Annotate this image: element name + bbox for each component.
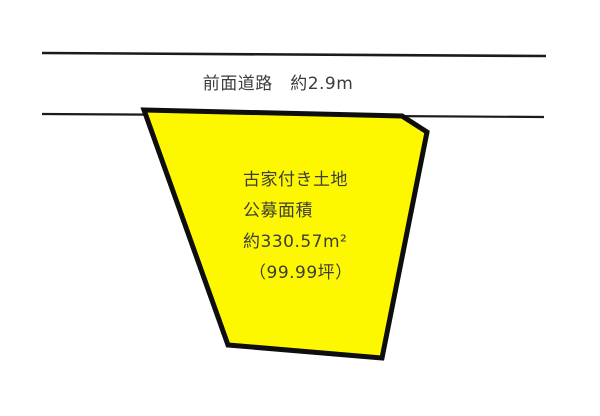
road-upper-edge-line: [42, 53, 546, 56]
land-title-label: 古家付き土地: [243, 165, 353, 196]
land-area-value-label: 約330.57m²: [243, 227, 353, 258]
land-tsubo-value-label: （99.99坪）: [243, 258, 353, 289]
land-plot-diagram: 前面道路 約2.9m 古家付き土地 公募面積 約330.57m² （99.99坪…: [0, 0, 600, 416]
land-area-type-label: 公募面積: [243, 196, 353, 227]
road-label: 前面道路 約2.9m: [203, 74, 354, 95]
land-label-block: 古家付き土地 公募面積 約330.57m² （99.99坪）: [243, 165, 353, 289]
